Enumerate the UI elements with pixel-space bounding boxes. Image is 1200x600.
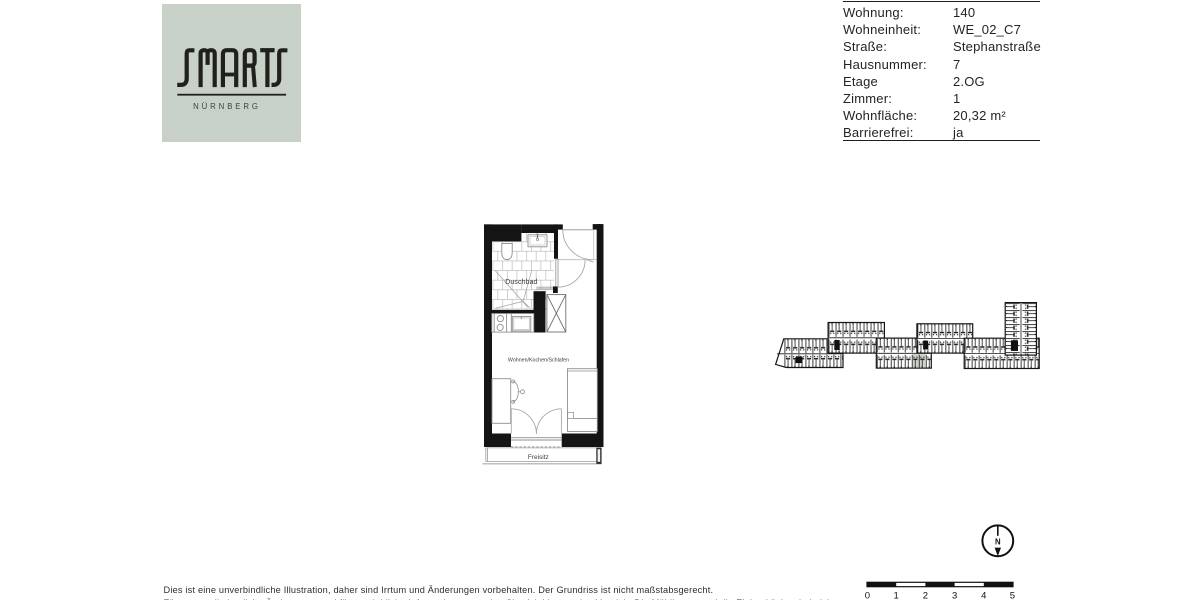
svg-text:3: 3 [952,591,957,600]
svg-text:N: N [995,538,1001,547]
svg-text:0: 0 [865,591,870,600]
svg-text:4: 4 [981,591,986,600]
svg-text:5: 5 [1010,591,1015,600]
svg-text:1: 1 [894,591,899,600]
svg-text:Duschbad: Duschbad [505,279,537,286]
svg-text:2: 2 [923,591,928,600]
svg-text:Wohnen/Kochen/Schlafen: Wohnen/Kochen/Schlafen [508,357,569,363]
svg-text:Freisitz: Freisitz [528,454,549,461]
